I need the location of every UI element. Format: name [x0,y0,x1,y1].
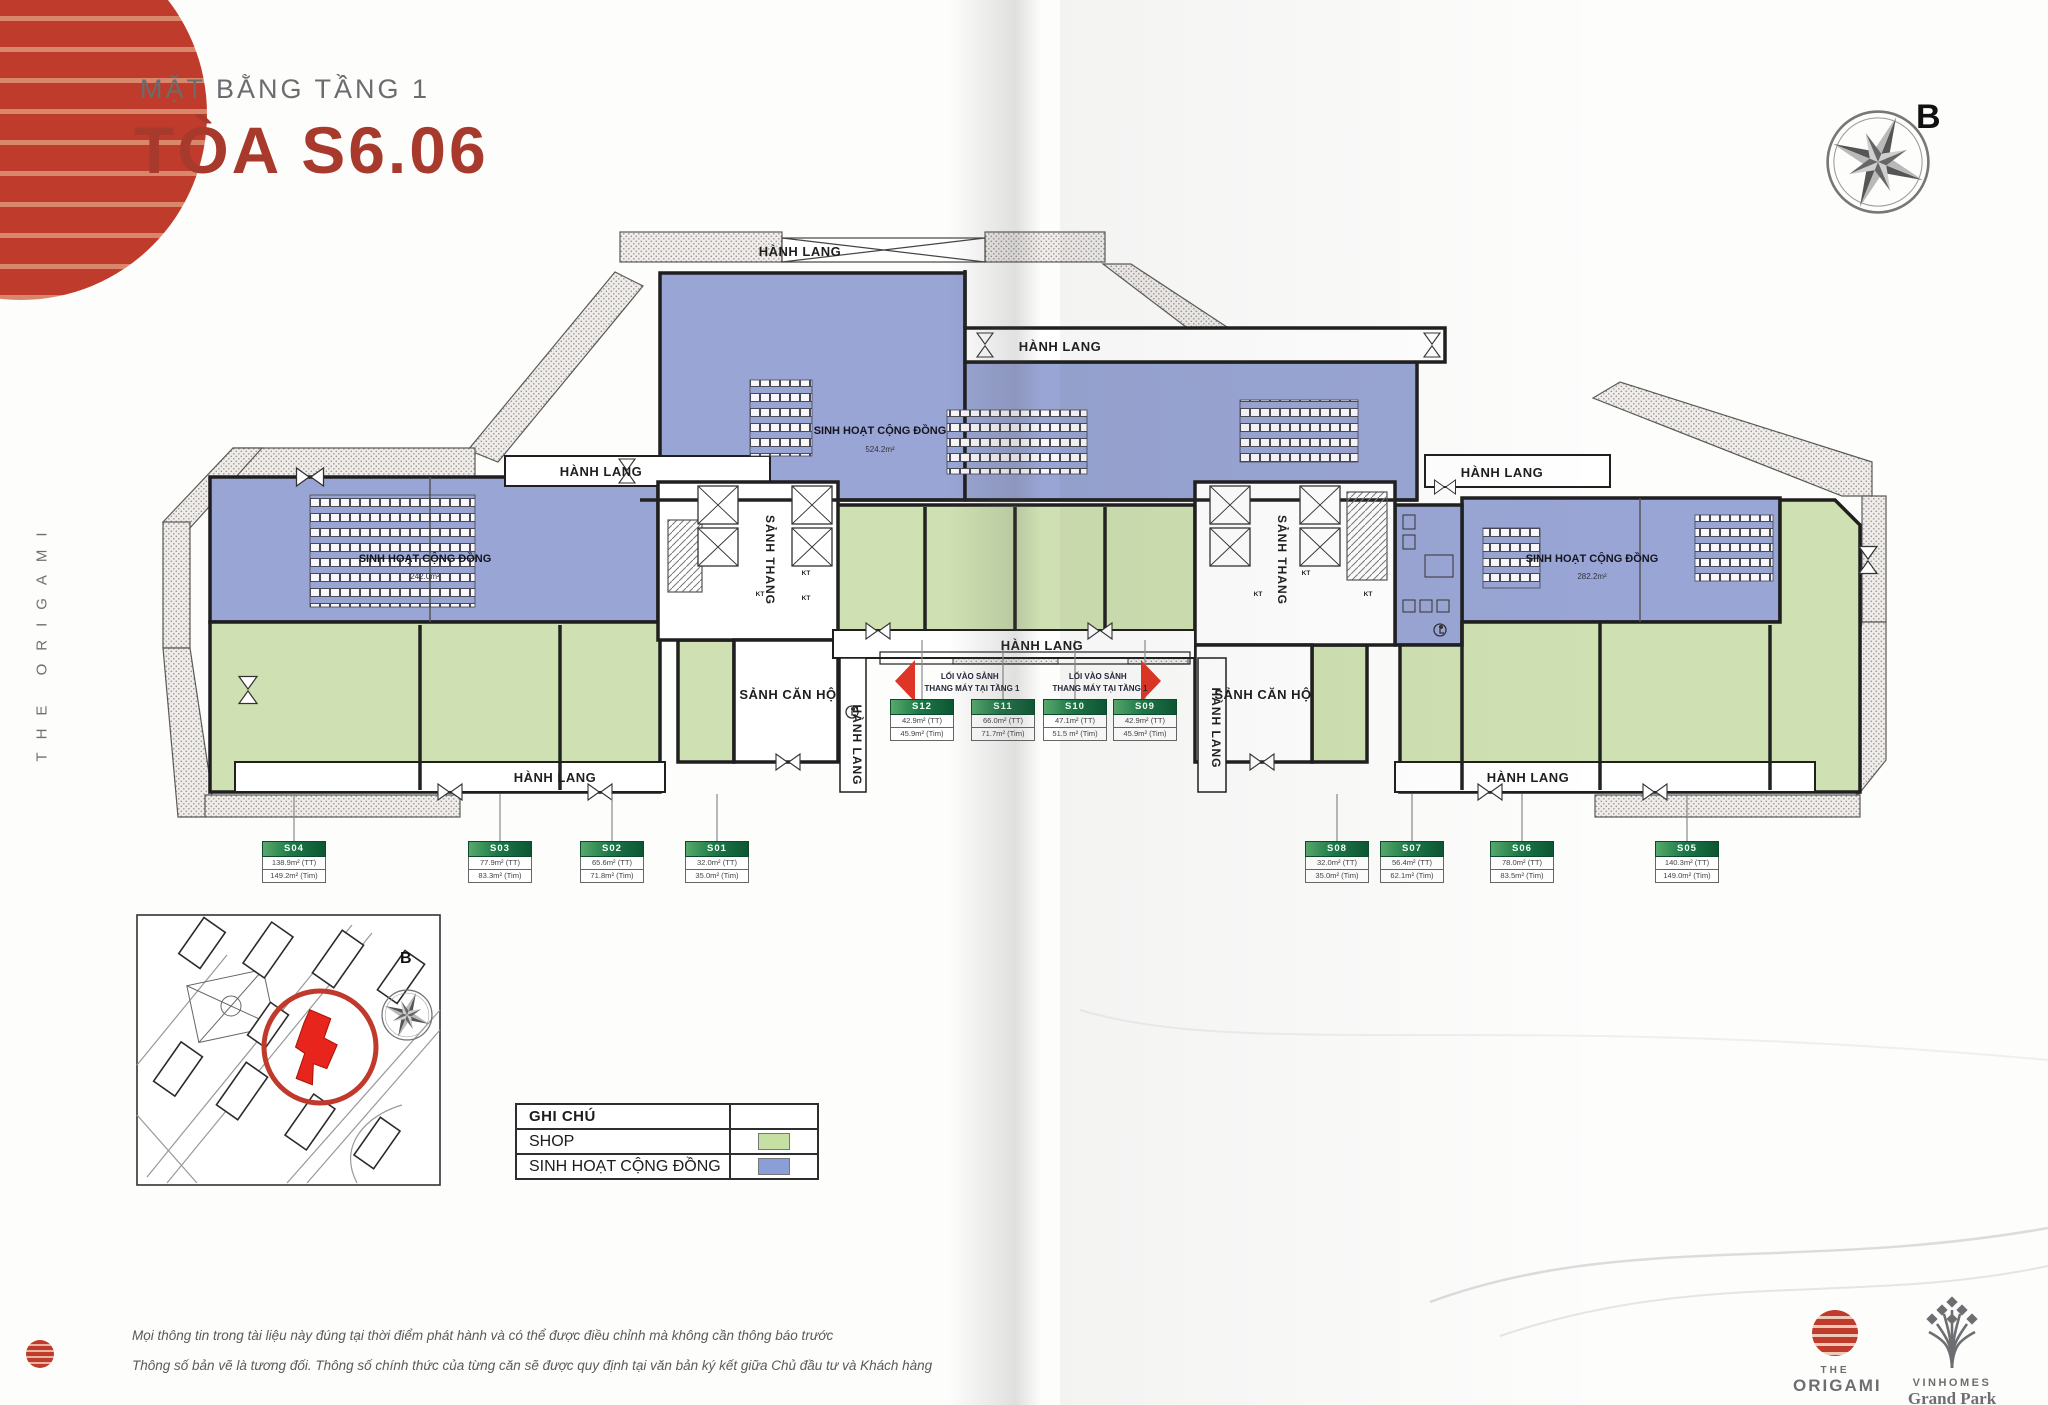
unit-area-tim: 45.9m² (Tim) [890,728,954,741]
vinhomes-tree-icon [1902,1294,2002,1370]
unit-callout-s11: S11 66.0m² (TT) 71.7m² (Tim) [971,699,1035,741]
label-kt: KT [1254,591,1263,598]
unit-area-tt: 65.6m² (TT) [580,857,644,870]
unit-area-tim: 51.5 m² (Tim) [1043,728,1107,741]
unit-id: S04 [262,841,326,857]
legend-row-shop: SHOP [517,1128,817,1153]
unit-id: S05 [1655,841,1719,857]
disclaimer-line-1: Mọi thông tin trong tài liệu này đúng tạ… [132,1328,833,1343]
unit-id: S12 [890,699,954,715]
unit-id: S11 [971,699,1035,715]
label-kt: KT [802,595,811,602]
unit-area-tim: 35.0m² (Tim) [685,870,749,883]
compass-north: B [1815,98,1941,225]
label-community-left-area: 242.0m² [410,572,440,581]
unit-callout-s03: S03 77.9m² (TT) 83.3m² (Tim) [468,841,532,883]
label-community-right-area: 282.2m² [1577,572,1607,581]
site-map-compass-label: B [400,950,412,967]
label-sanh-thang-left: SẢNH THANG [763,515,778,605]
legend-swatch-shop [758,1133,790,1150]
legend: GHI CHÚ SHOP SINH HOẠT CỘNG ĐỒNG [515,1103,819,1180]
unit-callout-s01: S01 32.0m² (TT) 35.0m² (Tim) [685,841,749,883]
unit-callout-s10: S10 47.1m² (TT) 51.5 m² (Tim) [1043,699,1107,741]
unit-callout-s09: S09 42.9m² (TT) 45.9m² (Tim) [1113,699,1177,741]
label-hanh-lang-vert-left: HÀNH LANG [850,705,865,786]
label-hanh-lang-bottom-right: HÀNH LANG [1487,770,1570,785]
unit-area-tim: 71.7m² (Tim) [971,728,1035,741]
unit-area-tim: 45.9m² (Tim) [1113,728,1177,741]
brochure-page: MẶT BẰNG TẦNG 1 TÒA S6.06 THE ORIGAMI [0,0,2048,1405]
origami-logo-name: ORIGAMI [1793,1376,1877,1396]
label-kt: KT [1302,570,1311,577]
entrance-note-right: LỐI VÀO SẢNH THANG MÁY TẠI TẦNG 1 [1053,666,1149,693]
label-hanh-lang-bottom-left: HÀNH LANG [514,770,597,785]
unit-area-tim: 35.0m² (Tim) [1305,870,1369,883]
unit-id: S06 [1490,841,1554,857]
label-community-top-area: 524.2m² [865,445,895,454]
unit-area-tim: 149.0m² (Tim) [1655,870,1719,883]
unit-area-tim: 62.1m² (Tim) [1380,870,1444,883]
unit-callout-s08: S08 32.0m² (TT) 35.0m² (Tim) [1305,841,1369,883]
label-kt: KT [756,591,765,598]
label-kt: KT [1364,591,1373,598]
label-hanh-lang-top: HÀNH LANG [1019,339,1102,354]
compass-label: B [1916,98,1941,136]
legend-header-row: GHI CHÚ [517,1105,817,1128]
legend-label-shop: SHOP [517,1130,731,1153]
vinhomes-logo: VINHOMES Grand Park [1902,1294,2002,1405]
label-hanh-lang-left-top: HÀNH LANG [560,464,643,479]
label-community-left: SINH HOẠT CỘNG ĐỒNG [359,552,492,565]
legend-title: GHI CHÚ [517,1105,731,1128]
legend-label-community: SINH HOẠT CỘNG ĐỒNG [517,1155,731,1178]
unit-area-tim: 71.8m² (Tim) [580,870,644,883]
label-hanh-lang-right-top: HÀNH LANG [1461,465,1544,480]
legend-row-community: SINH HOẠT CỘNG ĐỒNG [517,1153,817,1178]
vinhomes-logo-subname: Grand Park [1902,1389,2002,1405]
unit-callout-s04: S04 138.9m² (TT) 149.2m² (Tim) [262,841,326,883]
unit-area-tt: 56.4m² (TT) [1380,857,1444,870]
decor-waves [1080,1010,2048,1336]
unit-area-tt: 138.9m² (TT) [262,857,326,870]
unit-area-tt: 140.3m² (TT) [1655,857,1719,870]
label-sanh-can-ho-left: SẢNH CĂN HỘ [739,687,836,702]
unit-area-tim: 149.2m² (Tim) [262,870,326,883]
unit-area-tt: 78.0m² (TT) [1490,857,1554,870]
unit-area-tim: 83.3m² (Tim) [468,870,532,883]
label-kt: KT [802,570,811,577]
unit-id: S01 [685,841,749,857]
unit-area-tim: 83.5m² (Tim) [1490,870,1554,883]
disclaimer-line-2: Thông số bản vẽ là tương đối. Thông số c… [132,1358,932,1373]
unit-area-tt: 32.0m² (TT) [1305,857,1369,870]
unit-area-tt: 47.1m² (TT) [1043,715,1107,728]
unit-id: S08 [1305,841,1369,857]
unit-id: S09 [1113,699,1177,715]
unit-id: S10 [1043,699,1107,715]
entrance-arrows [895,660,1161,702]
origami-logo: THE ORIGAMI [1793,1310,1877,1396]
label-community-right: SINH HOẠT CỘNG ĐỒNG [1526,552,1659,565]
label-community-top: SINH HOẠT CỘNG ĐỒNG [814,424,947,437]
label-sanh-can-ho-right: SẢNH CĂN HỘ [1214,687,1311,702]
legend-header-spacer [731,1105,817,1128]
unit-callout-s07: S07 56.4m² (TT) 62.1m² (Tim) [1380,841,1444,883]
unit-id: S02 [580,841,644,857]
label-hanh-lang-center: HÀNH LANG [1001,638,1084,653]
unit-area-tt: 42.9m² (TT) [890,715,954,728]
unit-callout-s02: S02 65.6m² (TT) 71.8m² (Tim) [580,841,644,883]
unit-area-tt: 42.9m² (TT) [1113,715,1177,728]
site-map: B [137,915,440,1185]
unit-id: S03 [468,841,532,857]
entrance-note-left: LỐI VÀO SẢNH THANG MÁY TẠI TẦNG 1 [925,666,1021,693]
unit-id: S07 [1380,841,1444,857]
unit-area-tt: 32.0m² (TT) [685,857,749,870]
origami-circle-icon [1812,1310,1858,1356]
vinhomes-logo-name: VINHOMES [1902,1377,2002,1389]
origami-logo-the: THE [1793,1365,1877,1376]
unit-area-tt: 77.9m² (TT) [468,857,532,870]
unit-callout-s05: S05 140.3m² (TT) 149.0m² (Tim) [1655,841,1719,883]
unit-area-tt: 66.0m² (TT) [971,715,1035,728]
legend-swatch-community [758,1158,790,1175]
unit-callout-s12: S12 42.9m² (TT) 45.9m² (Tim) [890,699,954,741]
unit-callout-s06: S06 78.0m² (TT) 83.5m² (Tim) [1490,841,1554,883]
label-sanh-thang-right: SẢNH THANG [1275,515,1290,605]
label-hanh-lang-topbar: HÀNH LANG [759,244,842,259]
